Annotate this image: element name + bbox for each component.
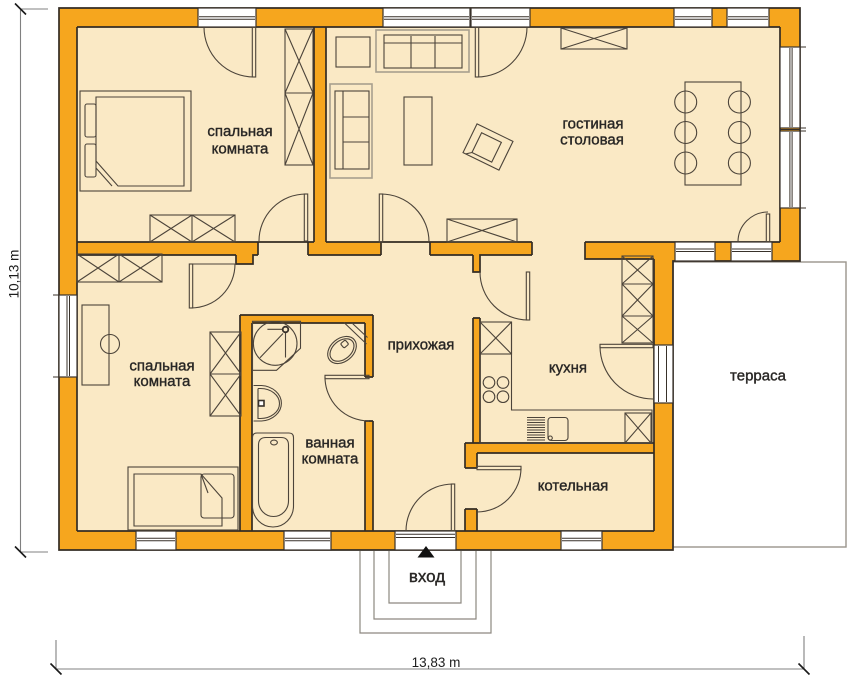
svg-text:терраса: терраса bbox=[730, 368, 787, 385]
svg-text:10,13 m: 10,13 m bbox=[7, 250, 22, 299]
svg-text:комната: комната bbox=[134, 373, 191, 390]
svg-text:кухня: кухня bbox=[549, 360, 587, 377]
svg-text:13,83 m: 13,83 m bbox=[412, 655, 461, 670]
svg-text:столовая: столовая bbox=[560, 132, 624, 149]
svg-text:гостиная: гостиная bbox=[563, 116, 624, 133]
svg-text:ванная: ванная bbox=[305, 435, 354, 452]
svg-text:комната: комната bbox=[212, 141, 269, 158]
svg-text:котельная: котельная bbox=[538, 478, 609, 495]
svg-text:вход: вход bbox=[409, 567, 445, 586]
svg-text:прихожая: прихожая bbox=[388, 337, 455, 354]
svg-text:комната: комната bbox=[302, 451, 359, 468]
svg-text:спальная: спальная bbox=[129, 358, 194, 375]
svg-text:спальная: спальная bbox=[207, 123, 272, 140]
